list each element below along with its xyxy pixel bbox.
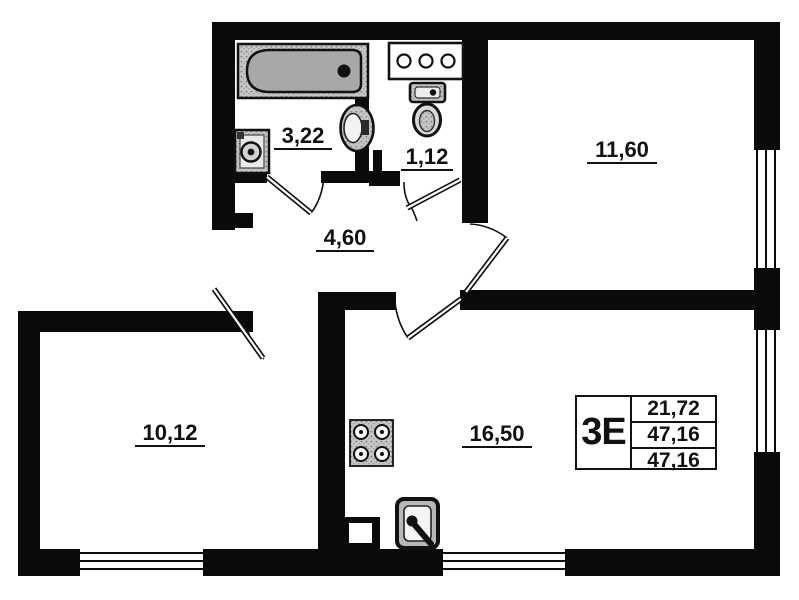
washing-machine-icon [235, 130, 269, 173]
wall [318, 292, 345, 549]
wall [565, 549, 780, 576]
wall [235, 213, 253, 228]
bathtub-drain [338, 65, 351, 78]
apartment-type-label: 3Е [577, 397, 632, 468]
apartment-info-box: 3Е 21,72 47,16 47,16 [575, 395, 717, 470]
window-bedroom [754, 150, 780, 268]
room-label-hallway-text: 4,60 [324, 225, 367, 250]
apartment-areas: 21,72 47,16 47,16 [632, 397, 715, 468]
wall [754, 22, 780, 150]
room-label-room: 10,12 [135, 420, 205, 446]
room-label-bedroom-text: 11,60 [595, 137, 649, 162]
toilet-icon [410, 83, 445, 136]
window-room [80, 549, 203, 576]
wall [18, 311, 253, 332]
door-kitchen [395, 299, 461, 338]
wall [462, 38, 488, 223]
wall [212, 22, 780, 40]
apartment-area-value: 47,16 [632, 421, 715, 447]
stove-icon [350, 420, 393, 466]
wall [460, 290, 756, 310]
door-bathroom [267, 177, 324, 213]
floor-plan-canvas: 3,22 1,12 11,60 4,60 10,12 16,50 [0, 0, 799, 600]
vent-duct [349, 523, 372, 543]
room-label-bedroom: 11,60 [587, 137, 657, 163]
pedestal-sink-icon [341, 105, 374, 151]
wall [18, 311, 40, 576]
room-label-hallway: 4,60 [316, 225, 374, 251]
room-label-room-text: 10,12 [142, 420, 197, 445]
room-label-bathroom-text: 3,22 [282, 123, 325, 148]
door-wc [404, 180, 460, 221]
wall [754, 268, 780, 330]
door-bedroom [466, 224, 507, 292]
window-kitchen-east [754, 330, 780, 452]
window-kitchen-south [443, 549, 565, 576]
room-label-kitchen: 16,50 [462, 421, 532, 447]
bathtub-icon [238, 44, 368, 98]
walls [18, 22, 780, 576]
kitchen-sink-icon [397, 499, 438, 548]
room-label-kitchen-text: 16,50 [469, 421, 524, 446]
wall [203, 549, 443, 576]
room-label-wc: 1,12 [401, 144, 453, 170]
room-label-bathroom: 3,22 [274, 123, 332, 149]
living-area-value: 21,72 [632, 397, 715, 421]
room-label-wc-text: 1,12 [406, 144, 449, 169]
total-area-value: 47,16 [632, 447, 715, 473]
floor-plan: 3,22 1,12 11,60 4,60 10,12 16,50 3Е 21,7… [0, 0, 799, 600]
wall [212, 22, 235, 230]
riser-shaft-icon [389, 43, 463, 79]
wall [373, 150, 382, 175]
